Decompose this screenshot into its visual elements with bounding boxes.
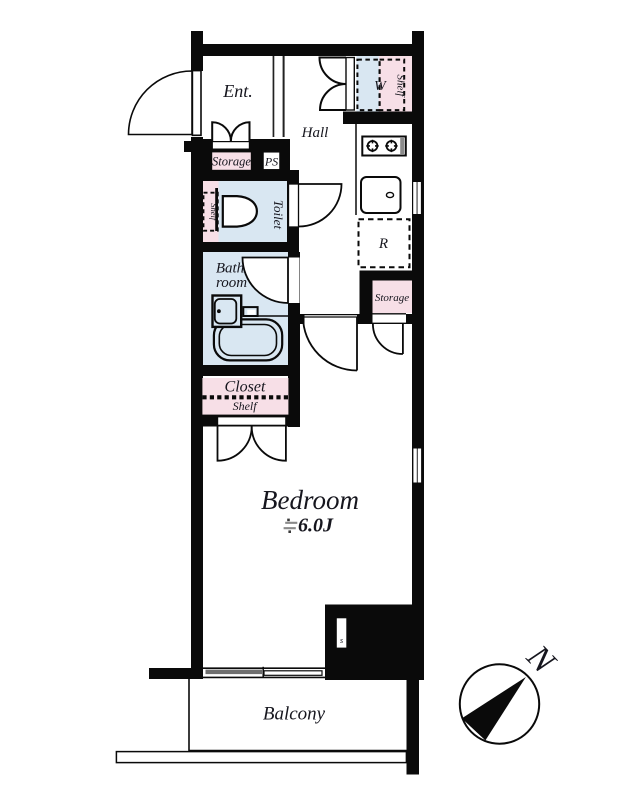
svg-text:Closet: Closet xyxy=(225,379,266,396)
svg-text:Ent.: Ent. xyxy=(222,81,253,101)
svg-text:Hall: Hall xyxy=(301,125,329,141)
svg-text:Shelf: Shelf xyxy=(394,75,406,99)
svg-text:6.0J: 6.0J xyxy=(298,515,334,537)
svg-text:s: s xyxy=(340,636,343,645)
svg-text:Shelf: Shelf xyxy=(233,399,259,413)
svg-text:Storage: Storage xyxy=(375,292,409,304)
svg-text:Toilet: Toilet xyxy=(271,200,286,230)
svg-text:Balcony: Balcony xyxy=(263,704,326,725)
svg-text:Storage: Storage xyxy=(212,155,251,169)
svg-text:Bedroom: Bedroom xyxy=(261,485,359,515)
svg-text:W: W xyxy=(374,79,387,94)
svg-text:R: R xyxy=(378,236,388,252)
svg-text:PS: PS xyxy=(264,155,278,169)
svg-text:room: room xyxy=(216,275,247,291)
